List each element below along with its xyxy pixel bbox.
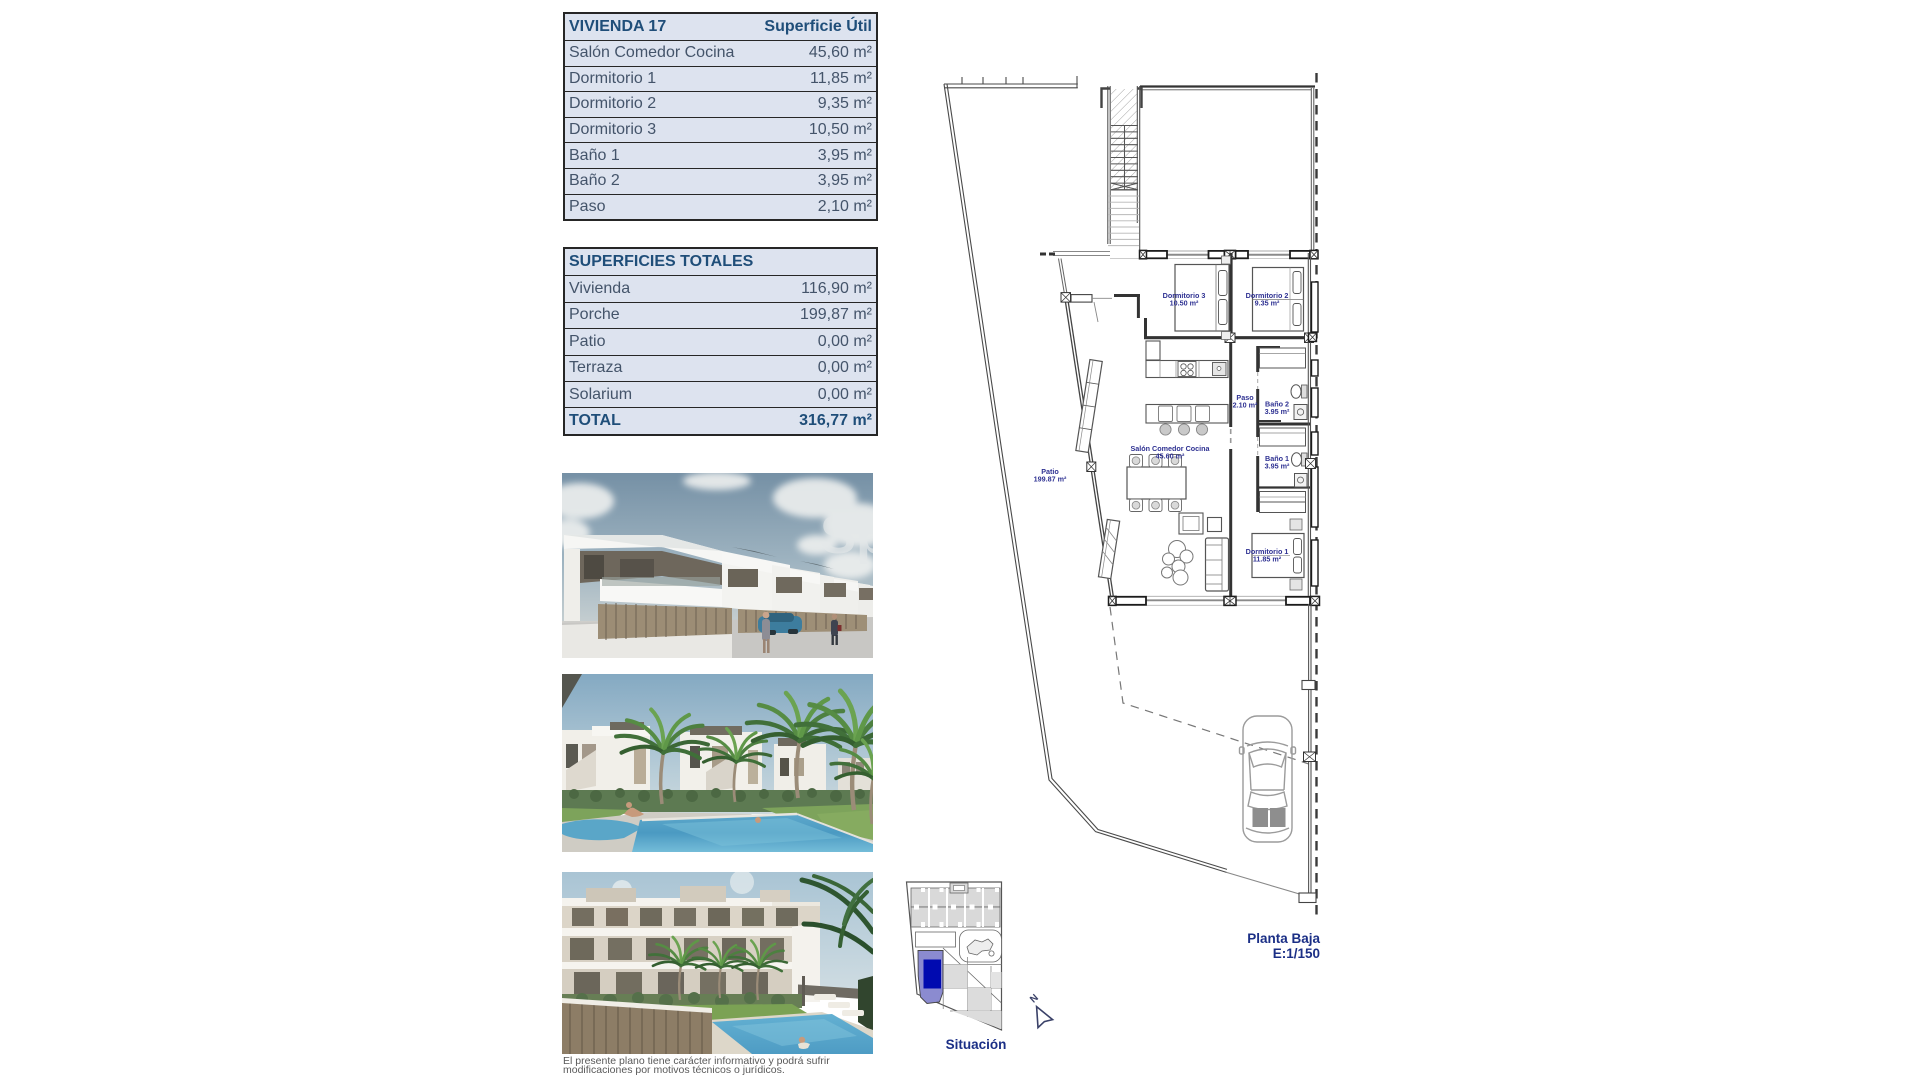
- svg-text:3.95 m²: 3.95 m²: [1265, 407, 1290, 416]
- svg-text:11.85 m²: 11.85 m²: [1253, 555, 1282, 564]
- svg-text:45.60 m²: 45.60 m²: [1156, 452, 1185, 461]
- svg-text:199.87 m²: 199.87 m²: [1034, 475, 1067, 484]
- svg-text:2.10 m²: 2.10 m²: [1233, 401, 1258, 410]
- svg-text:9.35 m²: 9.35 m²: [1255, 299, 1280, 308]
- svg-text:3.95 m²: 3.95 m²: [1265, 462, 1290, 471]
- svg-text:Sp: Sp: [820, 505, 873, 565]
- svg-text:10.50 m²: 10.50 m²: [1170, 299, 1199, 308]
- svg-text:N: N: [1028, 992, 1041, 1005]
